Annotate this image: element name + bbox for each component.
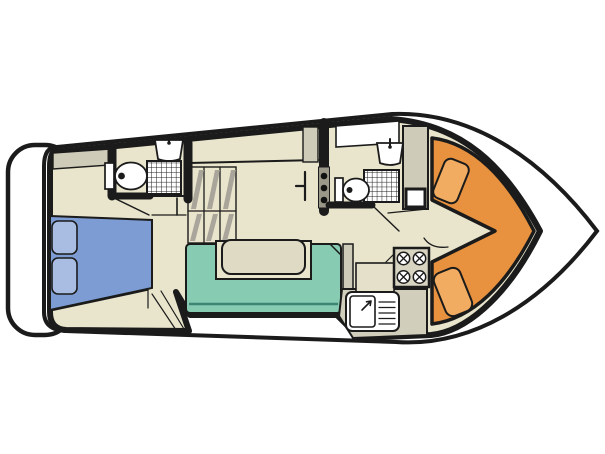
aft-shower-tray-grid: [147, 161, 181, 194]
corridor-cabinet: [303, 127, 318, 162]
boat-floor-plan: [0, 0, 605, 454]
fwd-toilet-cistern: [335, 178, 343, 202]
pillow-bottom: [52, 258, 77, 294]
shelf-knob: [321, 197, 328, 204]
saloon-table: [222, 240, 305, 274]
fwd-washbasin-drain: [388, 145, 392, 149]
fwd-shower-tray-grid: [364, 170, 399, 202]
aft-cabin-dresser: [53, 149, 110, 169]
fwd-toilet-flush: [347, 187, 353, 193]
wardrobe-door: [406, 189, 425, 207]
pillow-top: [52, 221, 77, 254]
saloon: [186, 240, 353, 313]
shelf-knob: [321, 173, 328, 180]
aft-toilet-cistern: [105, 163, 114, 189]
floor-plan-canvas: [0, 0, 605, 454]
aft-washbasin-drain: [167, 141, 171, 145]
aft-toilet-flush: [118, 173, 125, 180]
worktop: [356, 263, 394, 292]
shelf-knob: [321, 185, 328, 192]
